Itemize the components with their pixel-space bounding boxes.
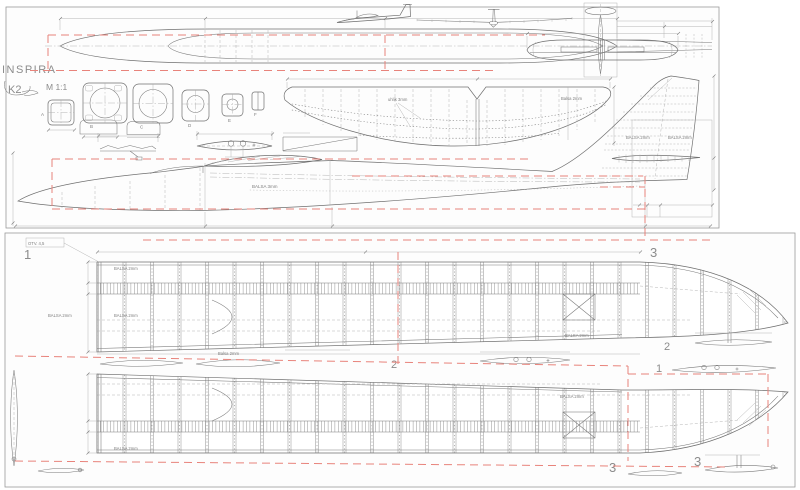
main-spar-bottom <box>97 421 640 432</box>
panel-number-1: 1 <box>24 247 31 262</box>
root-hole-note: OTV. 4,5 <box>28 241 45 246</box>
panel-number-3: 3 <box>650 245 657 260</box>
wing-skin-note: Balsa 2mm <box>561 96 582 101</box>
panel-bottom-note-2: BALSA 2mm <box>560 394 584 399</box>
plan-drawing: INSPIRA K2 M 1:1 <box>0 0 800 490</box>
template-number-2b: 2 <box>664 341 670 353</box>
panel-bottom-note-1: BALSA 2mm <box>114 446 138 451</box>
template-number-1: 1 <box>656 363 662 375</box>
former-b-label: B <box>90 124 93 129</box>
former-f-label: F <box>254 112 257 117</box>
panel-note-2: BALSA 2mm <box>48 313 72 318</box>
former-e-label: E <box>228 118 231 123</box>
scale-label: M 1:1 <box>46 82 68 92</box>
panel-note-1: BALSA 2mm <box>114 266 138 271</box>
fin-material-right-note: BALSA 2mm <box>668 135 692 140</box>
bottom-number-3a: 3 <box>609 460 616 475</box>
wing-spar-note: uhlík 3mm <box>388 97 408 102</box>
former-a-label: A <box>41 112 44 117</box>
template-number-2: 2 <box>391 359 397 371</box>
plan-page: INSPIRA K2 M 1:1 <box>0 0 800 490</box>
template-note: Balsa 2mm <box>218 351 239 356</box>
main-spar <box>97 283 640 294</box>
panel-note-4: BALSA 2mm <box>565 333 589 338</box>
fuselage-material-note: BALSA 3mm <box>252 184 278 189</box>
fin-material-left-note: BALSA 2mm <box>626 135 650 140</box>
panel-note-3: BALSA 2mm <box>114 313 138 318</box>
